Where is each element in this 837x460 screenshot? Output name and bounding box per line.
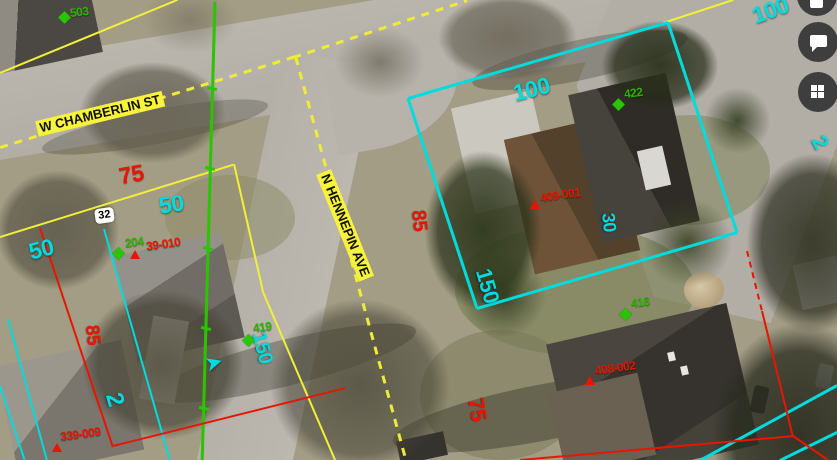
lot-line-yellow xyxy=(0,164,233,238)
lot-line-yellow xyxy=(262,292,336,460)
street-centerline-dashed xyxy=(293,0,468,58)
parcel-id-label: 408-002 xyxy=(594,359,636,377)
lot-line-red-dashed xyxy=(746,251,763,312)
house-number-label: 503 xyxy=(69,5,89,19)
house-number-label: 416 xyxy=(630,295,650,309)
basemap-grid-button[interactable] xyxy=(798,72,837,112)
parcel-map-viewer: W CHAMBERLIN ST N HENNEPIN AVE 100 100 5… xyxy=(0,0,837,460)
survey-line-cyan xyxy=(7,319,48,460)
grid-apps-icon xyxy=(811,85,824,98)
dimension-label: 30 xyxy=(599,212,619,233)
house-number-label: 422 xyxy=(623,86,643,100)
dimension-label: 100 xyxy=(749,0,792,28)
flow-arrow-icon: ➤ xyxy=(204,352,224,375)
dimension-label: 75 xyxy=(464,396,490,423)
lot-line-red xyxy=(520,435,793,460)
street-label-hennepin: N HENNEPIN AVE xyxy=(316,169,374,282)
survey-line-cyan xyxy=(0,386,26,460)
comment-bubble-icon xyxy=(810,35,827,47)
lot-line-yellow xyxy=(663,0,734,24)
window-icon xyxy=(810,0,823,8)
dimension-label: 150 xyxy=(472,266,503,306)
survey-point-marker: 32 xyxy=(94,207,115,224)
parcel-id-label: 339-009 xyxy=(59,425,101,443)
dimension-label: 100 xyxy=(511,74,552,105)
parcel-id-label: 409-001 xyxy=(539,186,581,204)
parcel-point-icon xyxy=(585,376,595,385)
parcel-point-icon xyxy=(130,250,140,259)
selected-parcel-cyan-south xyxy=(477,231,738,310)
dimension-label: 2 xyxy=(808,132,833,153)
parcel-point-icon xyxy=(530,200,540,209)
survey-line-green xyxy=(201,1,217,460)
survey-line-cyan xyxy=(103,229,171,460)
selected-parcel-cyan-west xyxy=(407,98,479,309)
lot-line-yellow xyxy=(233,164,264,292)
street-label-chamberlin: W CHAMBERLIN ST xyxy=(35,91,165,137)
house-number-label: 204 xyxy=(124,235,144,249)
parcel-id-label: 39-010 xyxy=(145,236,181,253)
address-point-icon xyxy=(619,308,632,321)
dimension-label: 50 xyxy=(27,235,56,263)
address-point-icon xyxy=(612,98,625,111)
dimension-label: 50 xyxy=(158,191,186,217)
dimension-label: 85 xyxy=(408,209,430,232)
house-number-label: 419 xyxy=(252,320,272,334)
parcel-point-icon xyxy=(52,443,62,452)
lot-line-red xyxy=(113,387,345,447)
dimension-label: 85 xyxy=(82,324,103,346)
dimension-label: 2 xyxy=(101,390,128,409)
survey-line-cyan xyxy=(699,384,837,460)
parcel-overlay: W CHAMBERLIN ST N HENNEPIN AVE 100 100 5… xyxy=(0,0,837,460)
address-point-icon xyxy=(112,247,125,260)
address-point-icon xyxy=(58,11,71,24)
comments-button[interactable] xyxy=(798,22,837,62)
dimension-label: 75 xyxy=(117,161,145,188)
selected-parcel-cyan-east xyxy=(667,22,739,233)
dimension-label: 150 xyxy=(249,330,276,366)
